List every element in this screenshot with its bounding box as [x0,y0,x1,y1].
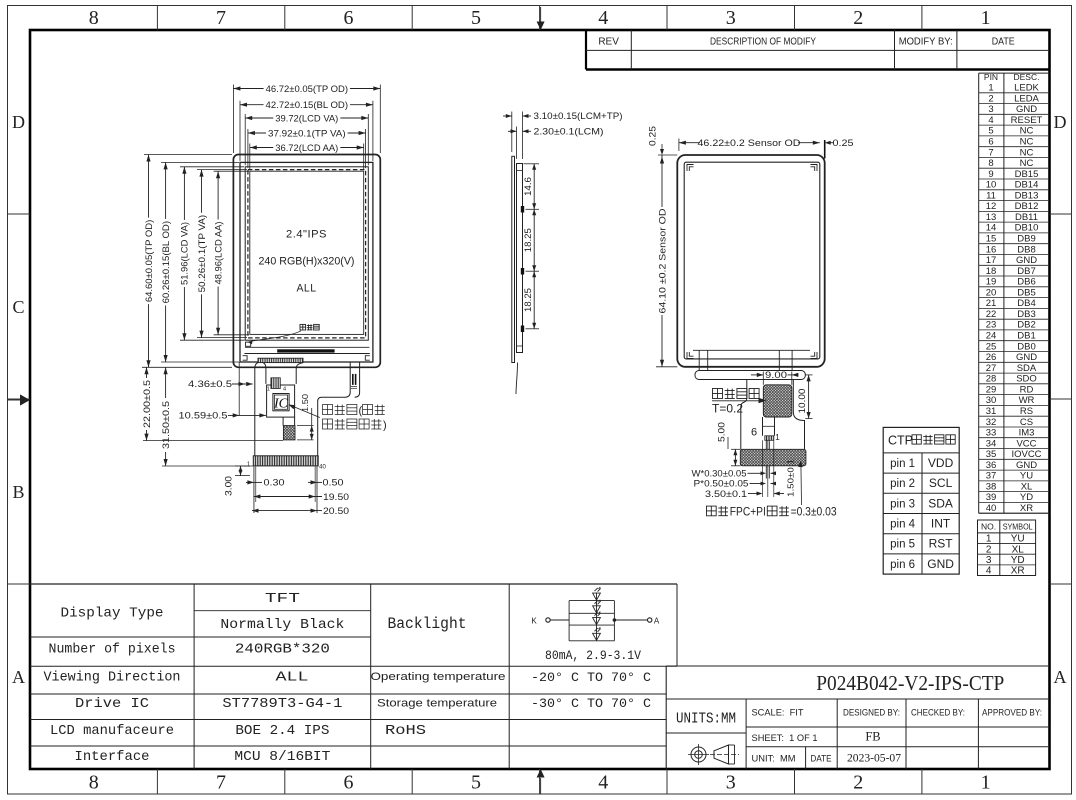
svg-text:1: 1 [988,83,993,94]
svg-text:1: 1 [267,387,270,393]
svg-text:2: 2 [986,544,992,555]
svg-text:32: 32 [986,417,997,428]
svg-text:DESCRIPTION OF MODIFY: DESCRIPTION OF MODIFY [710,37,816,48]
svg-text:4: 4 [986,566,992,577]
svg-text:26: 26 [986,352,997,363]
svg-text:3: 3 [726,772,736,794]
svg-text:LEDA: LEDA [1014,93,1039,104]
svg-text:pin 1: pin 1 [890,458,915,470]
svg-text:4: 4 [598,7,608,29]
svg-text:Drive IC: Drive IC [75,696,149,712]
svg-text:SDA: SDA [928,496,953,510]
svg-text:P024B042-V2-IPS-CTP: P024B042-V2-IPS-CTP [816,671,1004,695]
svg-text:Backlight: Backlight [388,615,467,633]
svg-text:20: 20 [986,287,997,298]
svg-text:3.50±0.1: 3.50±0.1 [705,489,747,499]
svg-text:51.96(LCD VA): 51.96(LCD VA) [180,222,191,285]
svg-text:P*0.50±0.05: P*0.50±0.05 [694,479,749,489]
svg-text:CHECKED BY:: CHECKED BY: [911,708,965,719]
svg-text:2.30±0.1(LCM): 2.30±0.1(LCM) [534,127,604,137]
svg-text:3.10±0.15(LCM+TP): 3.10±0.15(LCM+TP) [534,111,623,121]
svg-text:12: 12 [986,201,997,212]
svg-text:SYMBOL: SYMBOL [1003,522,1033,532]
svg-text:pin 2: pin 2 [890,478,915,490]
svg-text:DATE: DATE [992,37,1015,48]
svg-text:GND: GND [1016,255,1037,266]
svg-text:7: 7 [216,7,226,29]
svg-text:NC: NC [1020,147,1034,158]
svg-text:10.00: 10.00 [797,389,808,414]
svg-text:40: 40 [319,465,326,471]
svg-text:DB10: DB10 [1015,223,1039,234]
svg-text:29: 29 [986,384,997,395]
svg-text:DB15: DB15 [1015,169,1039,180]
svg-text:DB0: DB0 [1017,341,1035,352]
svg-text:PIN: PIN [984,72,998,82]
svg-text:36: 36 [986,460,997,471]
svg-text:RoHS: RoHS [385,724,426,739]
svg-text:36.72(LCD AA): 36.72(LCD AA) [275,143,338,154]
svg-text:6: 6 [988,137,993,148]
svg-text:0.25: 0.25 [833,138,854,149]
svg-text:D: D [12,112,25,132]
svg-text:=0.3±0.03: =0.3±0.03 [791,507,837,519]
svg-text:11: 11 [986,190,996,201]
svg-text:INT: INT [931,517,951,531]
svg-text:MCU 8/16BIT: MCU 8/16BIT [234,749,330,765]
svg-text:17: 17 [986,255,997,266]
svg-text:5: 5 [471,772,481,794]
svg-text:DB1: DB1 [1017,331,1035,342]
svg-text:SDO: SDO [1016,374,1037,385]
svg-text:0.50: 0.50 [323,478,344,489]
svg-text:28: 28 [986,374,997,385]
svg-text:GND: GND [1016,352,1037,363]
svg-text:31: 31 [986,406,997,417]
svg-text:1: 1 [981,7,991,29]
svg-text:1: 1 [775,433,780,442]
svg-text:SCL: SCL [929,476,953,490]
svg-text:4.36±0.5: 4.36±0.5 [188,379,232,390]
svg-text:C: C [12,297,24,317]
svg-text:13: 13 [986,212,997,223]
svg-text:1: 1 [986,534,992,545]
svg-text:Normally Black: Normally Black [220,617,344,633]
svg-text:50.26±0.1(TP VA): 50.26±0.1(TP VA) [197,215,208,293]
svg-text:SCALE: FIT: SCALE: FIT [752,708,804,719]
svg-text:64.10 ±0.2 Sensor OD: 64.10 ±0.2 Sensor OD [657,208,668,313]
svg-text:40: 40 [986,503,997,514]
svg-text:19.50: 19.50 [323,492,349,503]
svg-text:RESET: RESET [1011,115,1043,126]
svg-text:22.00±0.5: 22.00±0.5 [142,380,153,428]
svg-text:Interface: Interface [75,749,150,765]
svg-text:IM3: IM3 [1019,428,1035,439]
svg-text:DESC.: DESC. [1014,72,1040,82]
svg-text:33: 33 [986,428,997,439]
svg-text:24: 24 [986,331,997,342]
svg-text:SHEET: 1 OF 1: SHEET: 1 OF 1 [752,733,818,744]
svg-text:8: 8 [988,158,993,169]
svg-text:DB2: DB2 [1017,320,1035,331]
svg-text:42.72±0.15(BL OD): 42.72±0.15(BL OD) [266,100,348,111]
svg-text:ALL: ALL [276,670,309,686]
svg-text:SDA: SDA [1017,363,1037,374]
svg-text:ALL: ALL [297,283,317,295]
svg-text:GND: GND [1016,104,1037,115]
svg-text:14: 14 [986,223,997,234]
svg-text:3: 3 [986,555,992,566]
svg-text:16: 16 [986,244,997,255]
svg-text:5.00: 5.00 [716,422,727,442]
svg-text:MODIFY BY:: MODIFY BY: [899,37,953,48]
svg-text:D: D [1054,112,1067,132]
svg-text:46.22±0.2 Sensor OD: 46.22±0.2 Sensor OD [698,138,801,149]
svg-text:15: 15 [986,234,997,245]
svg-text:RD: RD [1020,384,1034,395]
svg-text:2: 2 [853,7,863,29]
svg-text:YU: YU [1020,471,1033,482]
svg-text:DB14: DB14 [1015,180,1039,191]
svg-text:38: 38 [986,481,997,492]
svg-text:-30° C TO 70° C: -30° C TO 70° C [531,696,651,711]
svg-text:0.25: 0.25 [647,126,658,146]
svg-text:pin 3: pin 3 [890,498,915,510]
svg-text:WR: WR [1019,395,1035,406]
svg-text:XR: XR [1011,566,1025,577]
svg-text:B: B [12,482,24,502]
svg-text:19: 19 [986,277,997,288]
svg-text:NC: NC [1020,158,1034,169]
svg-text:27: 27 [986,363,997,374]
svg-text:YU: YU [1011,534,1025,545]
svg-text:6: 6 [344,7,354,29]
svg-text:GND: GND [1016,460,1037,471]
svg-text:VDD: VDD [928,456,954,470]
svg-text:30: 30 [986,395,997,406]
svg-text:NC: NC [1020,126,1034,137]
svg-text:UNITS:MM: UNITS:MM [676,712,736,728]
svg-text:DB5: DB5 [1017,287,1035,298]
svg-text:IOVCC: IOVCC [1011,449,1041,460]
svg-text:UNIT: MM: UNIT: MM [752,754,796,765]
svg-text:4: 4 [988,115,993,126]
svg-text:T=0.2: T=0.2 [712,402,743,416]
svg-text:pin 4: pin 4 [890,519,916,531]
svg-text:NO.: NO. [981,522,996,532]
svg-text:7: 7 [988,147,993,158]
svg-text:LCD manufaceure: LCD manufaceure [50,723,174,739]
svg-text:IC: IC [273,397,289,412]
svg-text:23: 23 [986,320,997,331]
svg-text:8: 8 [89,7,99,29]
svg-text:FPC+PI: FPC+PI [730,507,766,519]
svg-text:3.00: 3.00 [224,476,235,496]
svg-text:60.26±0.15(BL OD): 60.26±0.15(BL OD) [161,221,172,303]
svg-text:NC: NC [1020,137,1034,148]
svg-text:W*0.30±0.05: W*0.30±0.05 [692,469,747,479]
svg-text:DB8: DB8 [1017,244,1035,255]
svg-text:DATE: DATE [811,754,832,765]
svg-text:18.25: 18.25 [523,288,533,312]
svg-text:48.96(LCD AA): 48.96(LCD AA) [213,221,224,284]
svg-text:DB4: DB4 [1017,298,1035,309]
svg-text:1.50±0.1: 1.50±0.1 [786,459,796,497]
svg-text:10: 10 [986,180,997,191]
svg-text:64.60±0.05(TP OD): 64.60±0.05(TP OD) [144,220,155,302]
svg-text:4: 4 [283,387,286,393]
svg-text:(: ( [359,405,363,417]
svg-text:YD: YD [1011,555,1025,566]
svg-text:4: 4 [598,772,608,794]
svg-text:2023-05-07: 2023-05-07 [847,753,901,765]
svg-text:DB3: DB3 [1017,309,1035,320]
svg-text:DB12: DB12 [1015,201,1039,212]
svg-text:DB7: DB7 [1017,266,1035,277]
svg-text:39.72(LCD VA): 39.72(LCD VA) [275,113,338,124]
svg-text:LEDK: LEDK [1014,83,1039,94]
svg-text:DB9: DB9 [1017,234,1035,245]
svg-text:DESIGNED BY:: DESIGNED BY: [843,708,900,719]
svg-text:RS: RS [1020,406,1033,417]
svg-text:0.30: 0.30 [264,478,285,489]
svg-text:YD: YD [1020,492,1033,503]
svg-text:A: A [1054,667,1067,687]
svg-text:39: 39 [986,492,997,503]
svg-text:VCC: VCC [1016,438,1036,449]
svg-text:80mA, 2.9-3.1V: 80mA, 2.9-3.1V [545,649,641,663]
svg-text:-20° C TO 70° C: -20° C TO 70° C [531,670,651,685]
svg-text:BOE 2.4 IPS: BOE 2.4 IPS [235,723,329,739]
svg-text:Display Type: Display Type [61,606,164,622]
svg-text:10.59±0.5: 10.59±0.5 [179,411,228,422]
svg-text:35: 35 [986,449,997,460]
svg-text:XL: XL [1021,481,1033,492]
svg-text:Number of pixels: Number of pixels [49,642,176,658]
svg-text:DB6: DB6 [1017,277,1035,288]
svg-text:240 RGB(H)x320(V): 240 RGB(H)x320(V) [259,256,355,268]
svg-text:31.50±0.5: 31.50±0.5 [161,401,172,449]
svg-text:25: 25 [986,341,997,352]
svg-text:A: A [12,667,25,687]
svg-text:5: 5 [471,7,481,29]
svg-text:GND: GND [927,557,954,571]
svg-text:CTP: CTP [888,434,913,448]
svg-text:REV: REV [598,37,619,48]
svg-text:8: 8 [89,772,99,794]
svg-text:ST7789T3-G4-1: ST7789T3-G4-1 [222,696,342,712]
svg-text:TFT: TFT [265,591,300,607]
svg-text:14.6: 14.6 [523,177,533,196]
svg-text:9: 9 [988,169,993,180]
svg-text:APPROVED BY:: APPROVED BY: [982,708,1042,719]
svg-text:46.72±0.05(TP OD): 46.72±0.05(TP OD) [266,84,348,95]
svg-text:2: 2 [988,93,993,104]
svg-text:240RGB*320: 240RGB*320 [235,642,330,658]
svg-text:6: 6 [344,772,354,794]
svg-text:XL: XL [1012,544,1025,555]
svg-text:pin 5: pin 5 [890,539,915,551]
svg-text:DB13: DB13 [1015,190,1039,201]
svg-text:DB11: DB11 [1015,212,1038,223]
svg-text:2.4"IPS: 2.4"IPS [286,229,327,241]
svg-text:37: 37 [986,471,997,482]
svg-text:Viewing Direction: Viewing Direction [44,670,181,686]
svg-text:FB: FB [865,730,880,744]
svg-text:1.50: 1.50 [300,394,310,412]
svg-text:20.50: 20.50 [323,506,349,517]
svg-text:37.92±0.1(TP VA): 37.92±0.1(TP VA) [268,128,346,139]
svg-text:18.25: 18.25 [523,228,533,252]
svg-text:K: K [531,617,537,626]
svg-text:5: 5 [988,126,993,137]
svg-text:XR: XR [1020,503,1033,514]
svg-text:6: 6 [751,427,757,439]
svg-text:Storage temperature: Storage temperature [377,698,497,710]
svg-text:22: 22 [986,309,997,320]
svg-text:pin 6: pin 6 [890,559,915,571]
svg-text:RST: RST [929,537,954,551]
svg-text:7: 7 [216,772,226,794]
svg-text:1: 1 [981,772,991,794]
svg-text:3: 3 [988,104,993,115]
svg-text:9.00: 9.00 [765,370,787,381]
svg-text:): ) [383,420,387,432]
svg-text:A: A [654,617,660,626]
svg-text:34: 34 [986,438,997,449]
svg-text:CS: CS [1020,417,1033,428]
svg-text:3: 3 [726,7,736,29]
svg-text:21: 21 [986,298,997,309]
svg-text:2: 2 [853,772,863,794]
svg-text:18: 18 [986,266,997,277]
svg-text:Operating temperature: Operating temperature [371,671,506,683]
